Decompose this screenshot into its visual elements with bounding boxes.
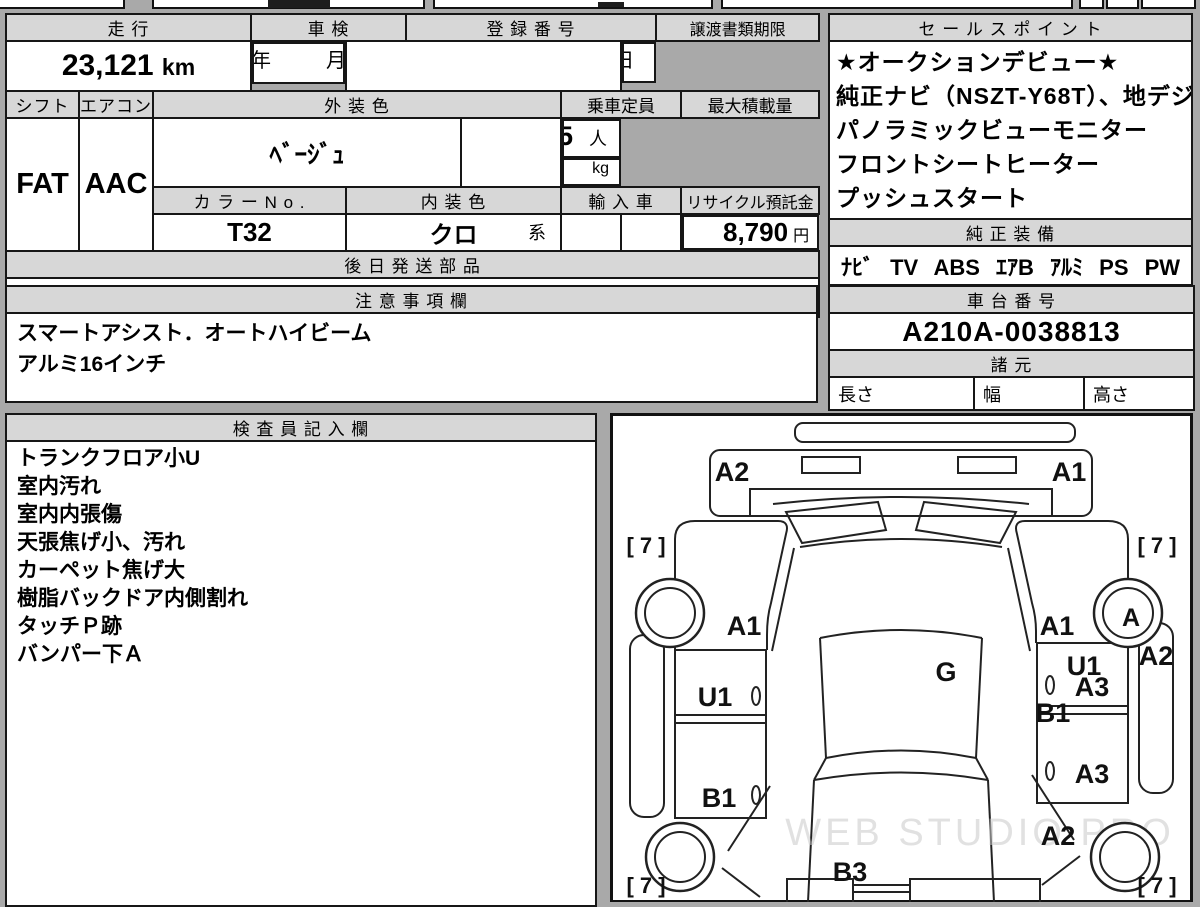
exterior-color-header: 外 装 色 — [153, 91, 561, 118]
inspection-month-label: 月 — [326, 44, 345, 73]
corner-grade-bottom-left: [ 7 ] — [626, 873, 665, 898]
auction-sheet: { "info": { "mileage_label": "走 行", "mil… — [0, 0, 1200, 900]
equipment-value: ﾅﾋﾞ TV ABS ｴｱB ｱﾙﾐ PS PW — [829, 246, 1192, 285]
mark-door-left-front: U1 — [698, 682, 733, 712]
top-cut-cell — [433, 0, 713, 9]
mark-door-left-rear: B1 — [702, 783, 737, 813]
spec-length: 長さ — [829, 377, 974, 410]
interior-color-value: クロ 系 — [346, 214, 561, 251]
exterior-color-value: ﾍﾞｰｼﾞｭ — [153, 118, 461, 187]
vehicle-info-table: 走 行 車 検 登 録 番 号 譲渡書類期限 23,121 km 年 月 月 日… — [5, 13, 820, 318]
mark-front-panel-right: A1 — [1052, 457, 1087, 487]
mark-fender-left: A1 — [727, 611, 762, 641]
color-no-value: T32 — [153, 214, 346, 251]
chassis-specs-table: 車 台 番 号 A210A-0038813 諸 元 長さ 幅 高さ — [828, 285, 1195, 411]
sales-point-line: プッシュスタート — [836, 181, 1185, 215]
top-cut-cell — [1106, 0, 1139, 9]
import-header: 輸 入 車 — [561, 187, 681, 214]
top-cut-cell — [1141, 0, 1196, 9]
top-cut-text-fragment — [598, 2, 624, 7]
corner-grade-top-right: [ 7 ] — [1137, 533, 1176, 558]
mark-roof: G — [935, 657, 956, 687]
interior-color-suffix: 系 — [528, 219, 546, 245]
top-cut-cell — [1079, 0, 1104, 9]
chassis-value: A210A-0038813 — [829, 313, 1194, 350]
car-top-view-drawing: WEB STUDIO PRO A2 A1 A1 A1 A G U1 — [610, 413, 1193, 902]
inspector-line: トランクフロア小U — [17, 445, 585, 473]
inspector-table: 検 査 員 記 入 欄 トランクフロア小U 室内汚れ 室内内張傷 天張焦げ小、汚… — [5, 413, 597, 907]
inspector-line: 樹脂バックドア内側割れ — [17, 585, 585, 613]
spec-height: 高さ — [1084, 377, 1194, 410]
capacity-header: 乗車定員 — [561, 91, 681, 118]
mileage-number: 23,121 — [62, 49, 154, 82]
registration-value — [346, 41, 621, 91]
inspector-line: タッチＰ跡 — [17, 613, 585, 641]
mileage-value: 23,121 km — [6, 41, 251, 91]
inspection-value: 年 月 — [252, 42, 345, 84]
inspector-line: 室内汚れ — [17, 473, 585, 501]
capacity-unit: 人 — [589, 125, 607, 151]
later-parts-header: 後 日 発 送 部 品 — [6, 251, 819, 278]
inspector-line: 室内内張傷 — [17, 501, 585, 529]
mark-rear-gate: B3 — [833, 857, 868, 887]
sales-point-line: 純正ナビ（NSZT-Y68T）、地デジ — [836, 79, 1185, 113]
deadline-day-label: 日 — [622, 44, 634, 73]
chassis-header: 車 台 番 号 — [829, 286, 1194, 313]
recycle-header: リサイクル預託金 — [681, 187, 819, 214]
max-load-header: 最大積載量 — [681, 91, 819, 118]
max-load-unit: kg — [592, 160, 609, 178]
note-line: アルミ16インチ — [17, 349, 806, 380]
deadline-header: 譲渡書類期限 — [656, 14, 819, 41]
recycle-unit: 円 — [793, 222, 809, 246]
sales-points-content: ★オークションデビュー★ 純正ナビ（NSZT-Y68T）、地デジ パノラミックビ… — [829, 41, 1192, 219]
capacity-number: 5 — [562, 121, 573, 152]
top-cut-cell — [0, 0, 125, 9]
notes-table: 注 意 事 項 欄 スマートアシスト．オートハイビーム アルミ16インチ — [5, 285, 818, 403]
aircon-value: AAC — [79, 118, 153, 251]
equipment-header: 純 正 装 備 — [829, 219, 1192, 246]
notes-header: 注 意 事 項 欄 — [6, 286, 817, 313]
car-condition-diagram: WEB STUDIO PRO A2 A1 A1 A1 A G U1 — [610, 413, 1193, 907]
inspector-header: 検 査 員 記 入 欄 — [6, 414, 596, 441]
mileage-header: 走 行 — [6, 14, 251, 41]
shift-value: FAT — [6, 118, 79, 251]
specs-header: 諸 元 — [829, 350, 1194, 377]
inspector-line: 天張焦げ小、汚れ — [17, 529, 585, 557]
aircon-header: エアコン — [79, 91, 153, 118]
mark-pillar-right: B1 — [1036, 698, 1071, 728]
inspector-content: トランクフロア小U 室内汚れ 室内内張傷 天張焦げ小、汚れ カーペット焦げ大 樹… — [6, 441, 596, 906]
mark-door-right-rear: A3 — [1075, 759, 1110, 789]
deadline-value: 月 日 — [622, 42, 656, 83]
mark-side-right: A2 — [1139, 641, 1174, 671]
inspector-line: カーペット焦げ大 — [17, 557, 585, 585]
mark-door-right-front: A3 — [1075, 672, 1110, 702]
inspection-header: 車 検 — [251, 14, 406, 41]
wheel-front-left-inner — [645, 588, 695, 638]
recycle-number: 8,790 — [723, 217, 788, 248]
sales-point-line: フロントシートヒーター — [836, 147, 1185, 181]
spec-width: 幅 — [974, 377, 1084, 410]
mark-quarter-right: A2 — [1041, 821, 1076, 851]
import-value-cell — [621, 214, 681, 251]
registration-header: 登 録 番 号 — [406, 14, 656, 41]
inspection-year-label: 年 — [252, 44, 271, 73]
mark-fender-right: A1 — [1040, 611, 1075, 641]
corner-grade-top-left: [ 7 ] — [626, 533, 665, 558]
max-load-value: kg — [562, 158, 621, 186]
mileage-unit: km — [162, 54, 195, 80]
note-line: スマートアシスト．オートハイビーム — [17, 318, 806, 349]
mark-front-panel-left: A2 — [715, 457, 750, 487]
top-cut-text-fragment — [268, 0, 330, 8]
notes-content: スマートアシスト．オートハイビーム アルミ16インチ — [6, 313, 817, 402]
sales-points-table: セ ー ル ス ポ イ ン ト ★オークションデビュー★ 純正ナビ（NSZT-Y… — [828, 13, 1193, 286]
shift-header: シフト — [6, 91, 79, 118]
recycle-value: 8,790 円 — [682, 215, 819, 250]
interior-color-name: クロ — [430, 222, 478, 249]
capacity-value: 5 人 — [562, 119, 621, 158]
color-no-header: カ ラ ー N o . — [153, 187, 346, 214]
sales-points-header: セ ー ル ス ポ イ ン ト — [829, 14, 1192, 41]
corner-grade-bottom-right: [ 7 ] — [1137, 873, 1176, 898]
inspector-line: バンパー下Ａ — [17, 641, 585, 669]
sales-point-line: パノラミックビューモニター — [836, 113, 1185, 147]
mark-wheel-front-right: A — [1122, 604, 1140, 632]
exterior-color-sub-cell — [461, 118, 561, 187]
top-cut-cell — [721, 0, 1073, 9]
interior-color-header: 内 装 色 — [346, 187, 561, 214]
sales-point-line: ★オークションデビュー★ — [836, 45, 1185, 79]
import-value-cell — [561, 214, 621, 251]
